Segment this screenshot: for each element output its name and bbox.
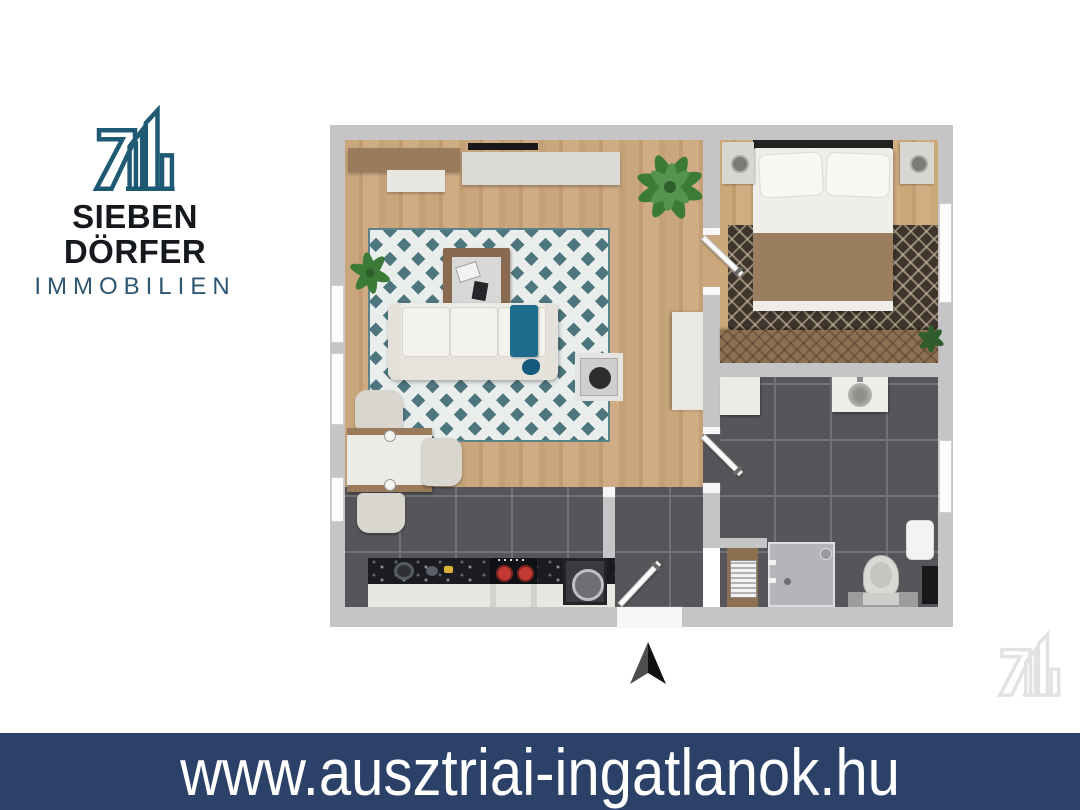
towel-radiator xyxy=(730,560,757,598)
website-banner: www.ausztriai-ingatlanok.hu xyxy=(0,733,1080,810)
table-knob xyxy=(384,479,396,491)
stove-flue xyxy=(589,367,611,389)
washing-machine xyxy=(563,558,607,605)
bathroom-shelf-brown xyxy=(727,548,758,607)
sofa-cushion xyxy=(402,307,450,357)
north-arrow-icon xyxy=(626,640,670,686)
seven-buildings-logo-icon xyxy=(90,100,180,200)
dining-chair xyxy=(422,438,462,486)
nightstand xyxy=(900,142,934,184)
plant-icon xyxy=(914,321,948,357)
wood-stove xyxy=(580,358,618,396)
kitchen-sink xyxy=(394,562,414,580)
washbasin-vanity xyxy=(832,377,888,412)
blanket xyxy=(753,233,893,303)
door-jamb xyxy=(703,483,720,493)
washer-door xyxy=(572,569,604,601)
wall-divider-middle xyxy=(703,295,720,427)
small-washbasin xyxy=(906,520,934,560)
throw-pillow xyxy=(522,359,540,375)
pillow xyxy=(758,151,824,198)
sofa-armrest xyxy=(545,303,558,380)
dining-chair xyxy=(357,493,405,533)
shower xyxy=(768,542,835,607)
table-knob xyxy=(384,430,396,442)
faucet xyxy=(857,377,863,382)
shower-head xyxy=(820,548,832,560)
window-bathroom xyxy=(939,440,952,513)
plant-icon xyxy=(344,245,396,301)
door-jamb xyxy=(703,287,720,295)
door-jamb xyxy=(703,427,720,434)
cooktop xyxy=(490,558,537,584)
entrance-threshold xyxy=(617,607,682,627)
nightstand xyxy=(722,142,754,184)
plant-icon xyxy=(628,145,712,229)
desk xyxy=(387,170,445,192)
brand-block: SIEBEN DÖRFER IMMOBILIEN xyxy=(4,100,266,301)
real-estate-floorplan-page: SIEBEN DÖRFER IMMOBILIEN xyxy=(0,0,1080,810)
lamp xyxy=(910,155,928,173)
shower-handle xyxy=(768,578,776,583)
toilet xyxy=(863,555,899,597)
burner xyxy=(517,565,534,582)
sofa-armrest xyxy=(388,303,401,380)
bathroom-cabinet-white xyxy=(720,377,760,415)
wall-bedroom-bathroom xyxy=(720,363,938,377)
oven-front xyxy=(490,584,537,607)
company-subtitle: IMMOBILIEN xyxy=(4,273,266,301)
dining-chair xyxy=(355,390,403,430)
media-console xyxy=(462,152,620,185)
wall-right xyxy=(938,125,953,627)
window-living-1 xyxy=(331,285,344,343)
floorplan xyxy=(330,125,953,627)
toilet-seat xyxy=(870,562,892,588)
pillow xyxy=(825,152,890,198)
bedroom-sideboard xyxy=(720,330,938,363)
toilet-cistern xyxy=(863,593,899,605)
stove-knobs xyxy=(498,559,528,561)
wall-top xyxy=(330,125,953,140)
sofa xyxy=(388,303,558,380)
wall-shelf xyxy=(348,148,460,172)
logo-watermark-icon xyxy=(995,628,1065,702)
entry-hall-floor xyxy=(615,487,703,607)
tall-cabinet xyxy=(672,312,703,410)
shower-drain xyxy=(784,578,791,585)
window-living-2 xyxy=(331,353,344,425)
door-jamb xyxy=(603,487,615,497)
shower-handle xyxy=(768,560,776,565)
sheet-fold xyxy=(753,301,893,311)
sofa-cushion xyxy=(450,307,498,357)
window-kitchen xyxy=(331,477,344,522)
window-bedroom xyxy=(939,203,952,303)
basin xyxy=(848,383,872,407)
website-url[interactable]: www.ausztriai-ingatlanok.hu xyxy=(180,734,900,810)
bed xyxy=(753,148,893,311)
company-name: SIEBEN DÖRFER xyxy=(4,200,266,269)
burner xyxy=(496,565,513,582)
bath-mat xyxy=(922,566,938,604)
tv-screen xyxy=(468,143,538,150)
wall-bathroom-nook xyxy=(703,538,767,548)
dish xyxy=(426,566,438,576)
dining-table xyxy=(347,428,432,492)
door-jamb xyxy=(703,228,720,235)
lamp xyxy=(731,155,749,173)
sponge xyxy=(444,566,453,573)
throw-blanket xyxy=(510,305,538,357)
